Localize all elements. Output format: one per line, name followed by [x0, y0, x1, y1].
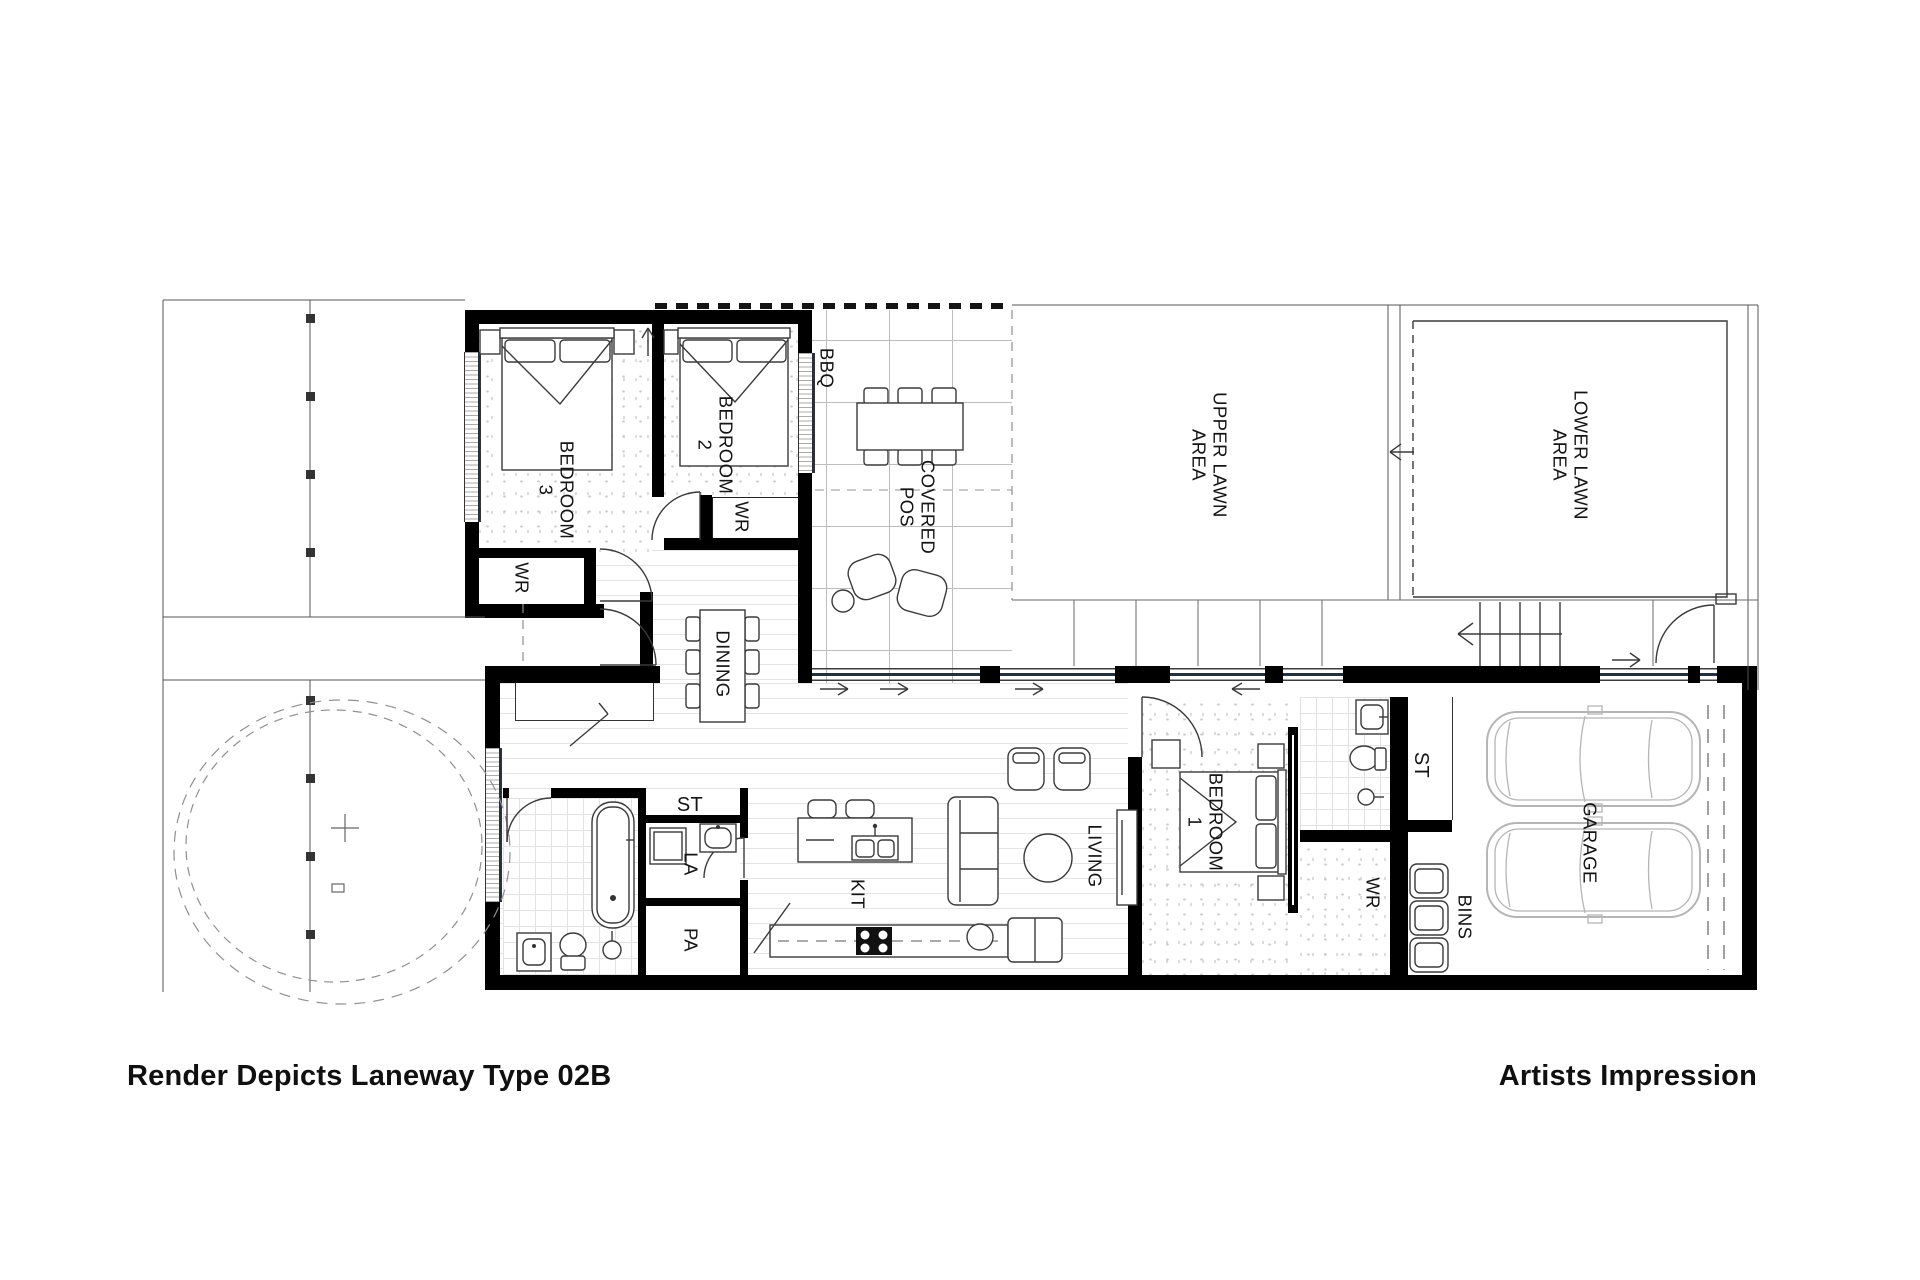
outdoor-dining-icon	[857, 388, 963, 465]
kitchen-island-icon	[798, 800, 912, 862]
caption-render-type: Render Depicts Laneway Type 02B	[127, 1060, 611, 1093]
label-laundry: LA	[680, 852, 701, 875]
sofa-icon	[948, 797, 998, 905]
label-store-hall: ST	[677, 794, 703, 816]
label-living: LIVING	[1084, 824, 1105, 887]
stairs-icon	[1458, 602, 1562, 666]
label-wr-bedroom1: WR	[1362, 877, 1383, 909]
label-lower-lawn: LOWER LAWN AREA	[1549, 390, 1590, 520]
armchair-icons	[1008, 748, 1090, 790]
label-store-garage: ST	[1410, 752, 1432, 778]
pedestal-basin-icon	[603, 931, 621, 959]
label-bbq: BBQ	[816, 348, 837, 388]
bathtub-icon	[592, 802, 634, 928]
floor-plan-page: BEDROOM 3 BEDROOM 2 WR WR BBQ COVERED PO…	[0, 0, 1920, 1280]
ensuite-fixture-icons	[1350, 700, 1388, 805]
toilet-bathroom-icon	[560, 933, 586, 970]
turning-circle	[174, 604, 523, 1004]
label-kitchen: KIT	[847, 879, 868, 909]
label-wr-bedroom2: WR	[731, 501, 752, 533]
label-upper-lawn: UPPER LAWN AREA	[1188, 392, 1229, 518]
bins-icon	[1410, 864, 1448, 972]
label-dining: DINING	[712, 630, 733, 697]
label-covered-pos: COVERED POS	[896, 460, 937, 554]
bench-seat-icon	[1008, 918, 1062, 962]
garage-door-dashed	[1708, 705, 1724, 970]
car-icon-1	[1487, 706, 1700, 812]
label-pantry: PA	[680, 928, 701, 952]
label-garage: GARAGE	[1579, 802, 1600, 884]
label-wr-bedroom3: WR	[511, 562, 532, 594]
garden-path-grid	[1012, 600, 1758, 666]
label-bins: BINS	[1454, 895, 1475, 940]
outdoor-lounge-icon	[832, 551, 950, 620]
label-bedroom-3: BEDROOM 3	[535, 441, 576, 539]
garage-entry-door	[1612, 594, 1736, 667]
lawn-step-arrow	[1390, 444, 1414, 460]
label-bedroom-1: BEDROOM 1	[1184, 773, 1225, 871]
label-bedroom-2: BEDROOM 2	[694, 396, 735, 494]
tv-unit-icon	[1117, 810, 1137, 905]
vanity-icon	[517, 933, 551, 971]
caption-artists-impression: Artists Impression	[1499, 1060, 1757, 1093]
